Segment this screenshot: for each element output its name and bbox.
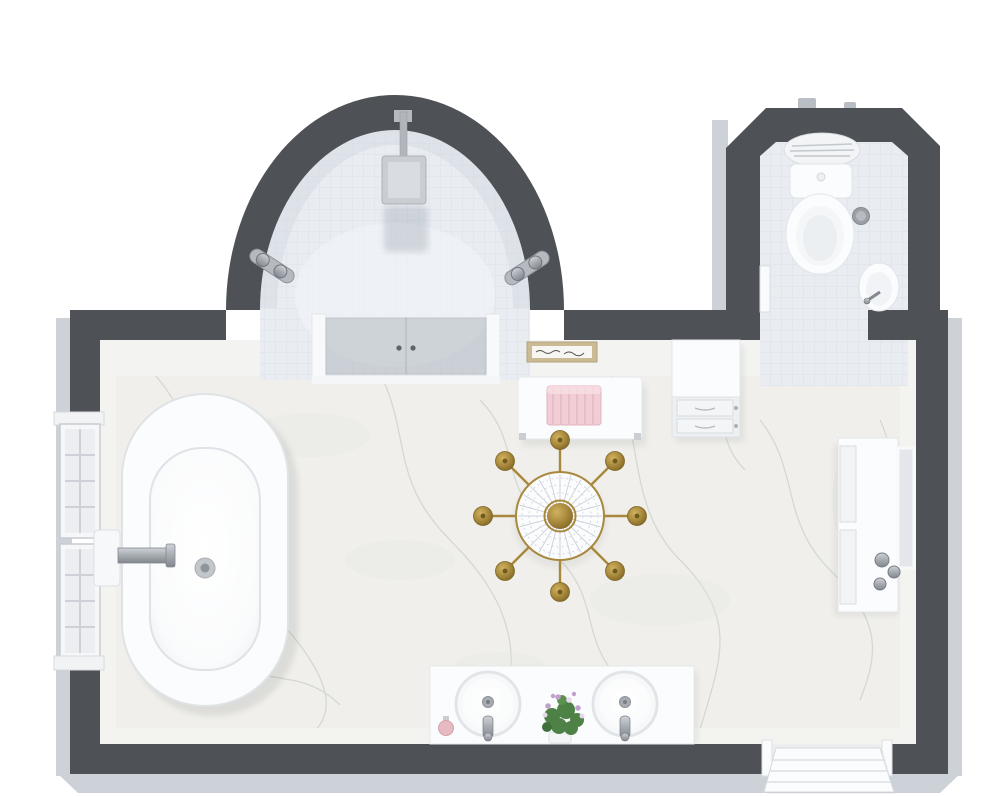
tub-filler-mount	[94, 530, 120, 586]
toilet-flush-button	[817, 173, 825, 181]
glass-jamb-left	[312, 314, 326, 378]
bench-leg	[519, 433, 526, 440]
dresser-drawer	[677, 419, 733, 433]
wc-door: Water closet door	[760, 266, 770, 312]
tub-filler-spout	[118, 548, 170, 563]
shower-glass-doors: Glass shower doors	[312, 314, 500, 384]
chandelier: Crystal chandelier	[474, 431, 647, 602]
tub-filler-spout-end	[166, 544, 175, 567]
dresser-drawer	[677, 400, 733, 416]
door-leaf	[764, 748, 894, 792]
glass-door-handle	[396, 345, 401, 350]
glass-jamb-right	[486, 314, 500, 378]
wall-art: Framed wall art	[527, 342, 597, 362]
faucet-right: Chrome faucet	[620, 716, 630, 741]
chandelier-hub	[547, 503, 573, 529]
dresser-top	[672, 340, 740, 397]
wc-door-leaf	[760, 266, 770, 312]
toilet-seat-inner	[803, 215, 837, 261]
mirror: Framed mirror	[898, 448, 914, 568]
entry-door: Entry door (open)	[762, 740, 895, 794]
sink-drain-hole	[486, 700, 490, 704]
folded-towel: Folded pink towel	[547, 386, 601, 425]
dresser-knob	[734, 406, 738, 410]
basin-faucet-knob	[864, 298, 870, 304]
sink-drain-hole	[623, 700, 627, 704]
faucet-left: Chrome faucet	[483, 716, 493, 741]
art-canvas	[532, 346, 592, 358]
towel-fold	[547, 386, 601, 394]
wc-corner-basin: Corner hand basin	[859, 263, 899, 311]
wc-passage-floor	[760, 340, 908, 386]
glass-panel-right	[406, 318, 486, 374]
window-sill	[54, 412, 104, 425]
wall-bottom-left	[70, 744, 768, 774]
vanity: Double sink vanity Round vessel sink Rou…	[430, 666, 698, 744]
wall-right	[916, 310, 948, 774]
wc-waste-bin: Waste bin	[853, 208, 870, 225]
mirror-glass	[898, 448, 914, 568]
soap-bottle	[439, 721, 454, 736]
floor-plan-canvas: 3D bathroom floor plan, top-down view	[0, 0, 1000, 797]
bin-lid	[856, 211, 866, 221]
bench-leg	[634, 433, 641, 440]
wall-bottom-right	[884, 744, 948, 774]
dresser-cabinet: Drawer cabinet	[672, 340, 744, 442]
bathtub-drain-hole	[201, 564, 210, 573]
glass-door-handle	[410, 345, 415, 350]
shower-head-face	[388, 162, 420, 198]
window-sill	[54, 656, 104, 670]
wall-left-lower	[70, 662, 100, 746]
cabinet-side-panel	[840, 530, 856, 604]
shower-threshold	[312, 376, 500, 384]
dresser-knob	[734, 424, 738, 428]
wall-left-upper	[70, 310, 100, 420]
wall-top-mid	[564, 310, 726, 340]
floor-plan-svg: 3D bathroom floor plan, top-down view	[0, 0, 1000, 797]
window-upper: Paned window	[54, 412, 104, 538]
shower-head-floor-shadow	[384, 206, 428, 252]
cabinet-side-panel	[840, 446, 856, 522]
glass-panel-left	[326, 318, 406, 374]
